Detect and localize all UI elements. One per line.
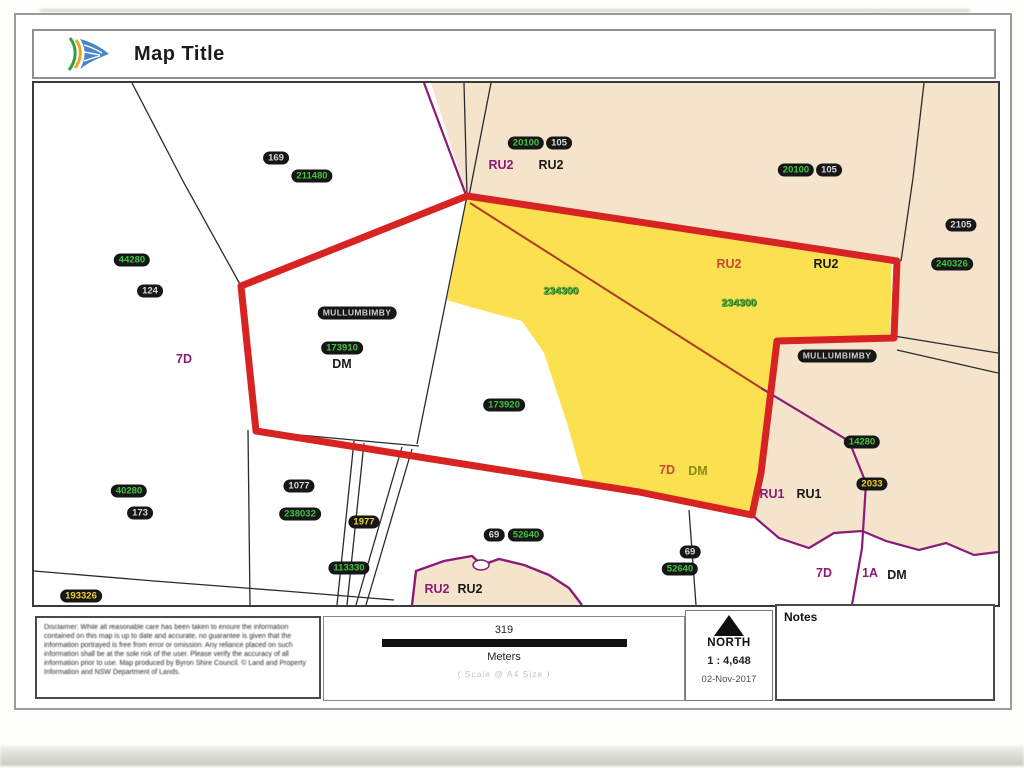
zone-label: DM: [688, 464, 707, 478]
parcel-number-badge: 211480: [291, 170, 332, 183]
zone-label: RU2: [457, 582, 482, 596]
scale-distance: 319: [324, 624, 684, 636]
parcel-number-badge: 2033: [856, 478, 887, 491]
parcel-number-badge: 105: [816, 164, 842, 177]
zone-label: RU1: [796, 487, 821, 501]
scale-bar: [382, 639, 627, 647]
parcel-number-badge: 240326: [931, 258, 973, 271]
parcel-number-badge: 40280: [111, 485, 147, 498]
parcel-number-badge: 52640: [662, 563, 698, 576]
scan-artifact-top: [40, 9, 970, 12]
zone-label: RU2: [488, 158, 513, 172]
scan-artifact-bottom: [0, 746, 1024, 766]
parcel-number-badge: 238032: [279, 508, 321, 521]
parcel-number-badge: 1977: [348, 516, 379, 529]
zone-label: RU2: [716, 257, 741, 271]
zone-label: DM: [332, 357, 351, 371]
map-canvas: 16921148020100105RU2RU220100105210524032…: [32, 81, 1000, 607]
zone-label: 7D: [816, 566, 832, 580]
parcel-number-badge: 113330: [328, 562, 369, 575]
zone-label: 1A: [862, 566, 878, 580]
map-label-layer: 16921148020100105RU2RU220100105210524032…: [34, 83, 998, 605]
zone-label: DM: [887, 568, 906, 582]
parcel-number-badge: 105: [546, 137, 572, 150]
zone-label: RU1: [759, 487, 784, 501]
map-sheet-page: Map Title: [14, 13, 1012, 710]
disclaimer-text: Disclaimer: While all reasonable care ha…: [44, 623, 312, 678]
zone-label: RU2: [424, 582, 449, 596]
scale-units: Meters: [324, 651, 684, 663]
parcel-number-badge: 173: [127, 507, 153, 520]
notes-panel: Notes: [775, 604, 995, 701]
north-label: NORTH: [686, 637, 772, 649]
north-panel: NORTH 1 : 4,648 02-Nov-2017: [685, 610, 773, 701]
map-date: 02-Nov-2017: [686, 674, 772, 685]
parcel-number-badge: 173910: [321, 342, 363, 355]
parcel-number-badge: 14280: [844, 436, 880, 449]
parcel-number-badge: 124: [137, 285, 163, 298]
map-header: Map Title: [32, 29, 996, 79]
parcel-number-badge: 20100: [508, 137, 544, 150]
zone-label: 234300: [721, 297, 756, 309]
parcel-number-badge: 44280: [114, 254, 150, 267]
council-logo-icon: [62, 35, 112, 73]
parcel-number-badge: 69: [484, 529, 505, 542]
parcel-number-badge: 2105: [945, 219, 976, 232]
parcel-number-badge: MULLUMBIMBY: [798, 350, 877, 363]
scale-panel: 319 Meters ( Scale @ A4 Size ): [323, 616, 685, 701]
parcel-number-badge: 193326: [60, 590, 102, 603]
parcel-number-badge: 20100: [778, 164, 814, 177]
parcel-number-badge: 169: [263, 152, 289, 165]
page-title: Map Title: [134, 43, 225, 66]
zone-label: 234300: [543, 285, 578, 297]
scale-note: ( Scale @ A4 Size ): [324, 669, 684, 679]
parcel-number-badge: 1077: [283, 480, 314, 493]
zone-label: 7D: [659, 463, 675, 477]
parcel-number-badge: 52640: [508, 529, 544, 542]
zone-label: RU2: [538, 158, 563, 172]
north-arrow-icon: [714, 615, 744, 636]
disclaimer-panel: Disclaimer: While all reasonable care ha…: [35, 616, 321, 699]
parcel-number-badge: MULLUMBIMBY: [318, 307, 397, 320]
zone-label: RU2: [813, 257, 838, 271]
notes-label: Notes: [784, 610, 986, 624]
scale-ratio: 1 : 4,648: [686, 655, 772, 667]
parcel-number-badge: 173920: [483, 399, 525, 412]
parcel-number-badge: 69: [680, 546, 701, 559]
zone-label: 7D: [176, 352, 192, 366]
